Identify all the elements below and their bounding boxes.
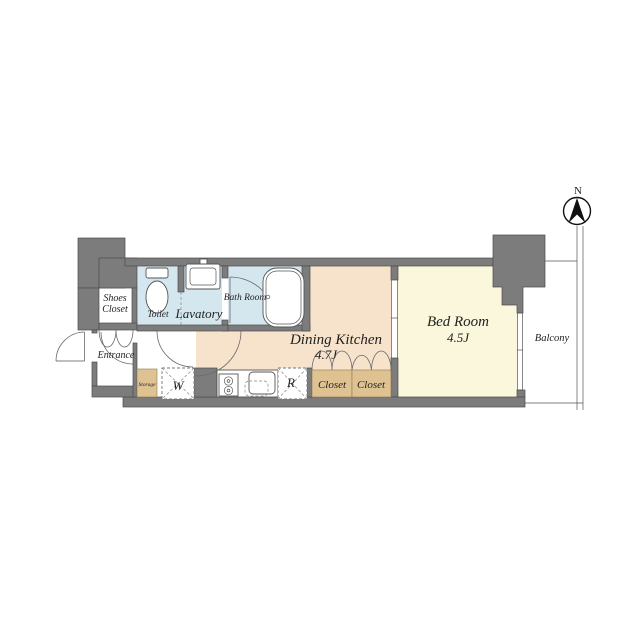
dining-kitchen-size: 4.7J	[315, 347, 338, 362]
toilet-tank	[146, 268, 168, 278]
bathtub-outer	[263, 268, 304, 327]
hall-door-left-arc	[157, 331, 193, 367]
wall-shoes-closet-bottom	[99, 323, 137, 330]
toilet-label: Toilet	[147, 310, 169, 320]
wall-top	[125, 258, 493, 266]
closet-right-label: Closet	[357, 379, 386, 391]
wall-dk-bedroom-lower	[391, 358, 398, 397]
shoes-closet-label-line2: Closet	[102, 304, 128, 315]
compass-north-label: N	[574, 185, 582, 197]
wall-toilet-lavatory-stub	[178, 266, 184, 292]
kitchen-sink	[249, 372, 275, 394]
wall-entrance-left	[92, 362, 97, 386]
wall-bath-bottom	[228, 325, 310, 331]
refrigerator-space-label: R	[286, 375, 295, 390]
floor-plan-page: N Shoes Closet Entrance Toilet Lavatory …	[0, 0, 640, 640]
bed-room-size: 4.5J	[447, 330, 470, 345]
bath-room-label: Bath Room	[224, 293, 267, 303]
toilet-bowl	[146, 281, 168, 313]
storage-label: Storage	[138, 382, 156, 388]
wall-entrance-bottom	[92, 386, 137, 397]
floor-plan: N Shoes Closet Entrance Toilet Lavatory …	[0, 0, 640, 640]
front-door-swing-arc	[56, 332, 85, 361]
wall-bedroom-bottom-right	[517, 390, 525, 397]
lavatory-label: Lavatory	[175, 306, 223, 321]
closet-left-label: Closet	[318, 379, 347, 391]
bed-room-label: Bed Room	[427, 314, 489, 330]
dining-kitchen-label: Dining Kitchen	[289, 332, 382, 348]
wall-left-column	[78, 288, 99, 330]
shoes-closet-label-line1: Shoes	[103, 293, 126, 304]
shoes-closet-doors-arc	[99, 330, 133, 347]
wall-lavatory-bath-upper	[222, 266, 228, 278]
wall-shoes-closet-right	[132, 288, 137, 325]
compass: N	[564, 185, 591, 225]
washer-space-label: W	[173, 378, 185, 393]
balcony-label: Balcony	[535, 333, 570, 344]
wall-kitchen-closet-divider	[307, 368, 312, 397]
wall-dk-bedroom-upper	[391, 266, 398, 280]
entrance-label: Entrance	[97, 350, 135, 361]
wall-hall-top	[137, 325, 228, 331]
wall-entrance-left-stub	[92, 330, 97, 333]
